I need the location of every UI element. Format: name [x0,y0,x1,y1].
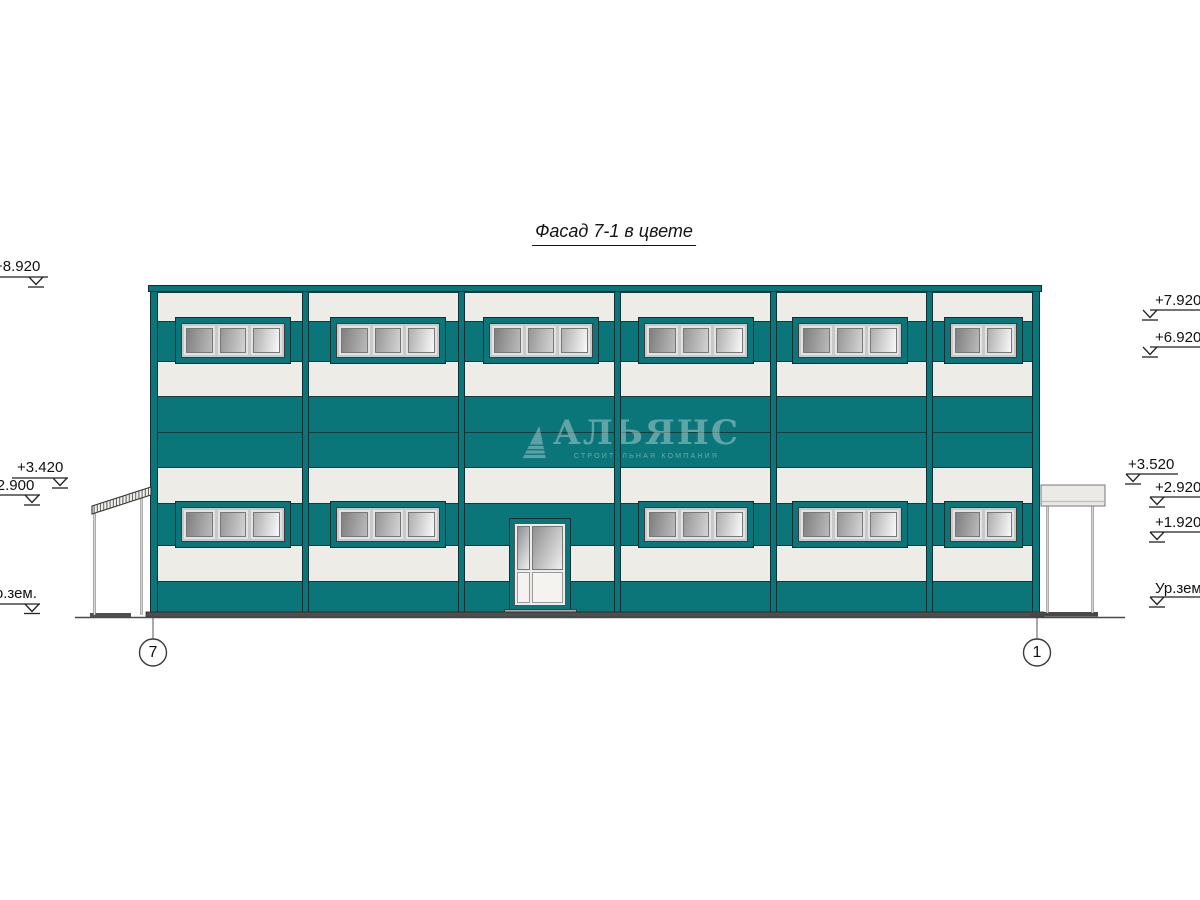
window-pane [184,510,215,539]
window-pane [184,326,215,355]
window-pane [406,326,437,355]
building-base-strip [90,612,1098,617]
window-frame [798,323,902,358]
window-frame [336,323,440,358]
elevation-mark [0,277,48,287]
window-pane [373,510,404,539]
window-pane [681,510,712,539]
right-canopy [1041,485,1105,613]
window-pane [492,326,523,355]
door-leaf-panel [532,572,563,603]
elevation-mark [1142,347,1200,357]
window-frame [950,507,1017,542]
window-frame [181,507,285,542]
left-canopy [92,487,151,615]
window-frame [181,323,285,358]
elevation-label: +7.920 [1155,292,1200,309]
right-canopy-fascia [1041,485,1105,506]
window [944,501,1023,548]
window [638,317,754,364]
facade-stripe-teal-base [150,581,1040,612]
window-pane [647,326,678,355]
window-pane [985,510,1014,539]
elevation-label: +6.920 [1155,329,1200,346]
window-pane [647,510,678,539]
window [175,501,291,548]
window-pane [953,510,982,539]
facade-joint-column [926,292,933,612]
window-pane [714,510,745,539]
elevation-mark [0,495,40,505]
window [944,317,1023,364]
door-sidelight [517,526,530,603]
elevation-mark [1149,597,1200,607]
door-threshold [504,609,577,616]
facade-joint-column [614,292,621,612]
facade-drawing-canvas: Фасад 7-1 в цвете АЛЬЯНС СТРОИТЕЛЬНАЯ КО… [0,0,1200,900]
window-pane [985,326,1014,355]
parapet-cap [148,285,1042,292]
window-pane [373,326,404,355]
door-sidelight-glass [517,526,530,570]
window-frame [950,323,1017,358]
door-frame [514,523,566,606]
window [638,501,754,548]
window-pane [868,326,899,355]
window-pane [251,510,282,539]
window-pane [251,326,282,355]
axis-bubble-label: 1 [1023,644,1051,662]
door-leaf [532,526,563,603]
elevation-mark [1149,497,1200,507]
window-pane [835,510,866,539]
window-pane [835,326,866,355]
window [330,501,446,548]
elevation-label: +2.900 [0,477,34,494]
window-frame [644,507,748,542]
elevation-mark [1142,310,1200,320]
window-pane [681,326,712,355]
window-pane [526,326,557,355]
entrance-door [509,518,571,611]
window-frame [336,507,440,542]
drawing-title: Фасад 7-1 в цвете [532,221,696,246]
window-pane [339,510,370,539]
facade-stripe-white [150,467,1040,503]
elevation-label: +1.920 [1155,514,1200,531]
corner-column-left [150,292,158,612]
window-pane [218,326,249,355]
elevation-label: +3.420 [17,459,63,476]
window-pane [868,510,899,539]
corner-column-right [1032,292,1040,612]
door-sidelight-panel [517,572,530,603]
door-leaf-glass [532,526,563,570]
window-pane [406,510,437,539]
window-pane [714,326,745,355]
window [792,317,908,364]
elevation-mark [1149,532,1200,542]
window-frame [489,323,593,358]
elevation-label: +3.520 [1128,456,1174,473]
elevation-label: +2.920 [1155,479,1200,496]
facade-joint-column [770,292,777,612]
window-pane [801,510,832,539]
elevation-label: +8.920 [0,258,40,275]
window [330,317,446,364]
elevation-mark [0,604,40,614]
facade-stripe-white [150,361,1040,396]
elevation-label: Ур.зем. [1155,580,1200,597]
elevation-label: Ур.зем. [0,585,37,602]
facade-stripe-white [150,545,1040,581]
window [792,501,908,548]
window-pane [339,326,370,355]
window-pane [801,326,832,355]
window-frame [798,507,902,542]
facade-joint-column [302,292,309,612]
axis-bubble-label: 7 [139,644,167,662]
facade-panel-joint-line [150,432,1040,433]
window-pane [953,326,982,355]
window-pane [218,510,249,539]
facade-joint-column [458,292,465,612]
window [175,317,291,364]
window [483,317,599,364]
window-pane [559,326,590,355]
left-canopy-roof [92,487,151,514]
window-frame [644,323,748,358]
